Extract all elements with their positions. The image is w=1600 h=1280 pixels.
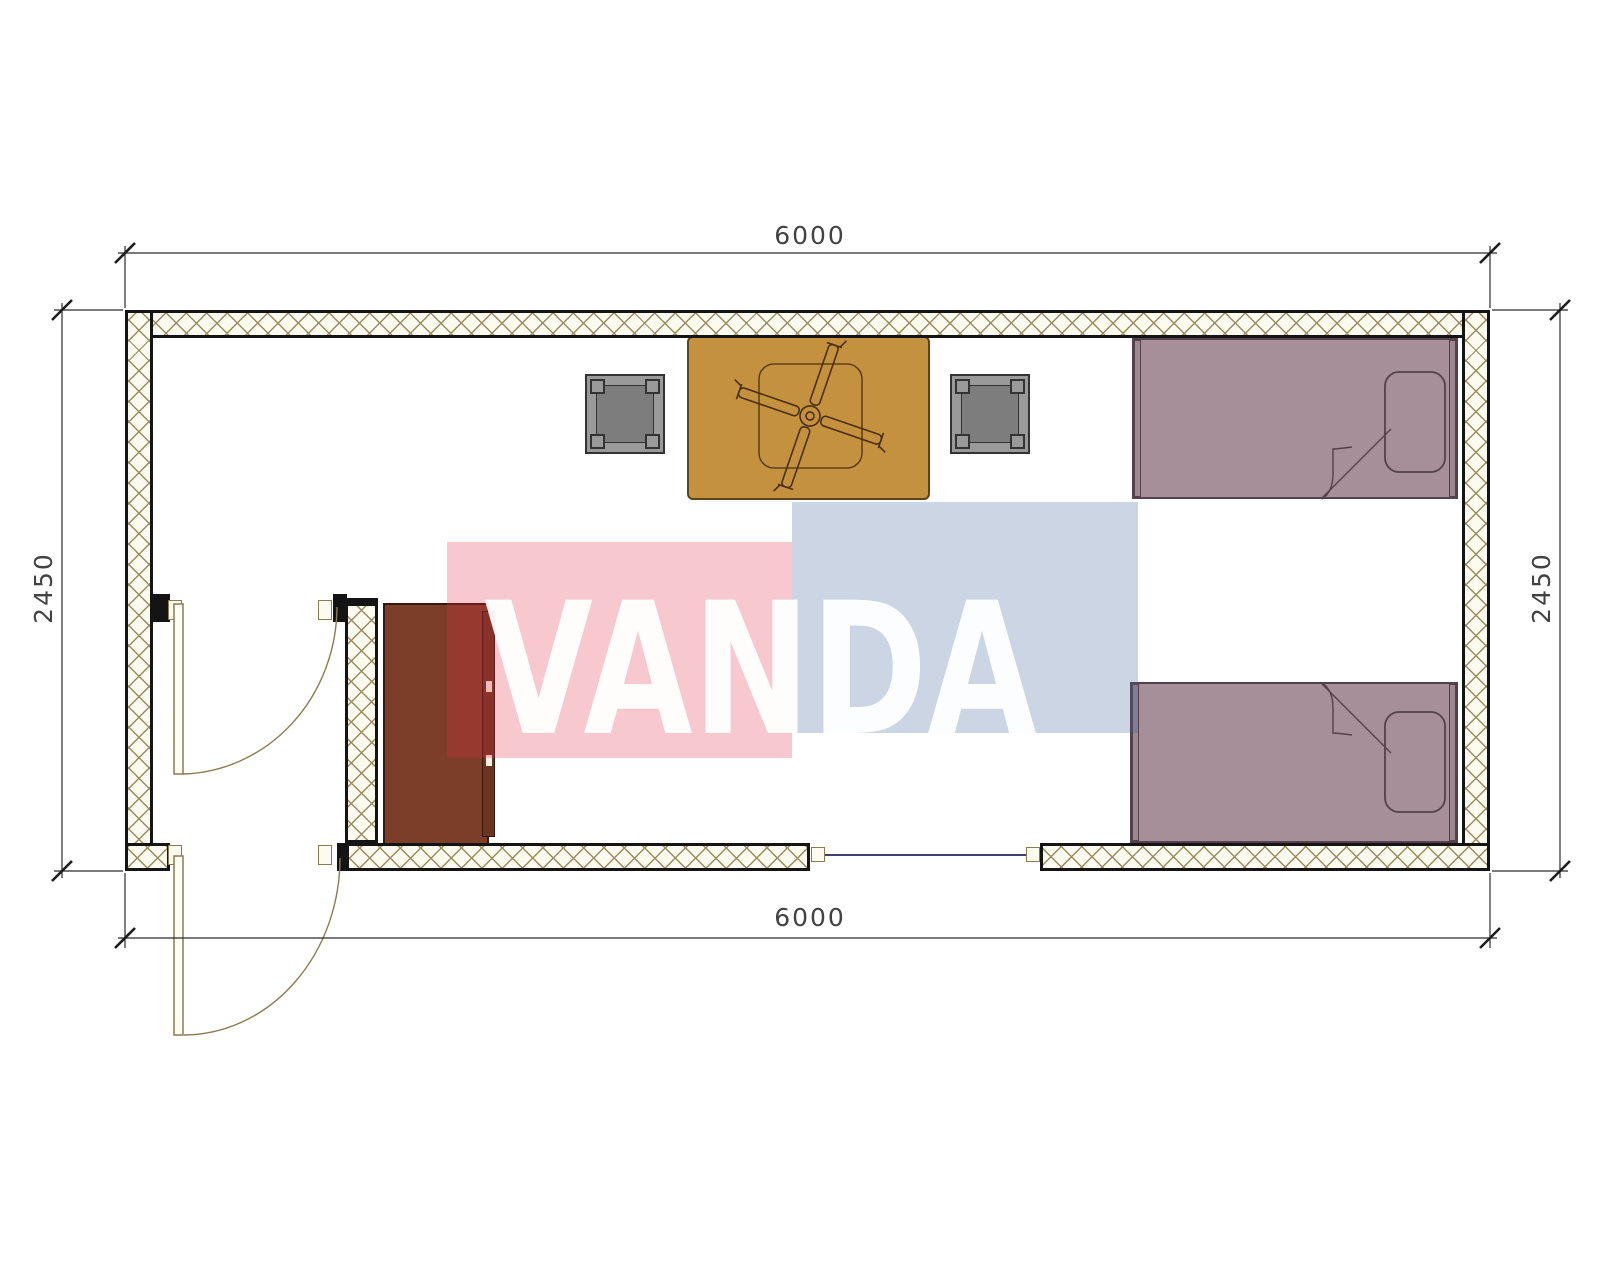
door-jamb-stub: [333, 594, 347, 622]
wall-bottom-right: [1040, 843, 1490, 871]
stool-right: [950, 374, 1030, 454]
stool-leg: [645, 379, 660, 394]
wall-right: [1462, 310, 1490, 871]
stool-leg: [1010, 379, 1025, 394]
bed-headboard: [1449, 684, 1456, 841]
dim-top-label: 6000: [740, 222, 880, 250]
watermark-text: VANDA: [484, 579, 1036, 762]
bed-bottom: [1130, 682, 1458, 843]
wall-bottom-left-corner: [125, 843, 170, 871]
wall-top: [125, 310, 1490, 338]
interior-door-leaf: [174, 604, 183, 774]
exterior-door-leaf: [174, 856, 183, 1035]
dim-left-label: 2450: [30, 518, 58, 658]
table: [687, 336, 930, 500]
door-frame-block: [318, 845, 332, 865]
stool-leg: [955, 434, 970, 449]
stool-leg: [645, 434, 660, 449]
window-jamb-block: [811, 847, 825, 862]
interior-door: [174, 604, 337, 774]
door-jamb-stub: [337, 843, 349, 871]
stool-leg: [955, 379, 970, 394]
bed-top: [1132, 338, 1458, 499]
stool-leg: [1010, 434, 1025, 449]
dim-bottom-label: 6000: [740, 904, 880, 932]
door-frame-block: [318, 600, 332, 620]
floor-plan: VANDA 6000 6000 2450 2450: [0, 0, 1600, 1280]
wall-left: [125, 310, 153, 871]
exterior-door: [174, 856, 340, 1035]
partition-wall: [345, 598, 378, 843]
interior-door-swing-arc: [183, 607, 337, 774]
dim-right-label: 2450: [1528, 518, 1556, 658]
stool-leg: [590, 379, 605, 394]
door-frame-block: [168, 845, 182, 865]
bed-headboard: [1449, 340, 1456, 497]
stool-left: [585, 374, 665, 454]
wall-bottom-center: [337, 843, 810, 871]
bed-footboard: [1134, 340, 1141, 497]
window-jamb-block: [1026, 847, 1040, 862]
stool-leg: [590, 434, 605, 449]
door-frame-block: [168, 600, 182, 620]
exterior-door-swing-arc: [184, 858, 340, 1035]
